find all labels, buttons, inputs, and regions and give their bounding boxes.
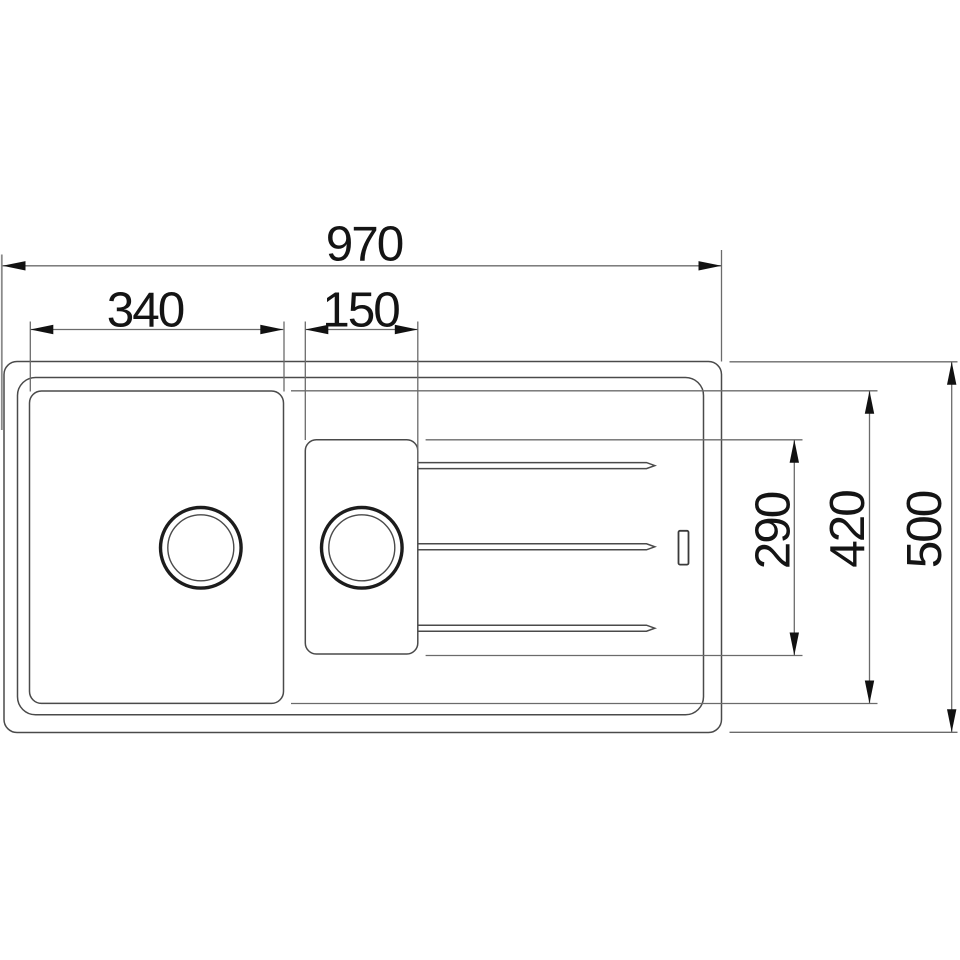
svg-text:500: 500 bbox=[897, 491, 952, 568]
svg-text:290: 290 bbox=[746, 492, 801, 569]
svg-text:150: 150 bbox=[322, 283, 399, 338]
svg-text:420: 420 bbox=[820, 491, 875, 568]
svg-text:970: 970 bbox=[326, 217, 403, 272]
svg-text:340: 340 bbox=[107, 283, 184, 338]
